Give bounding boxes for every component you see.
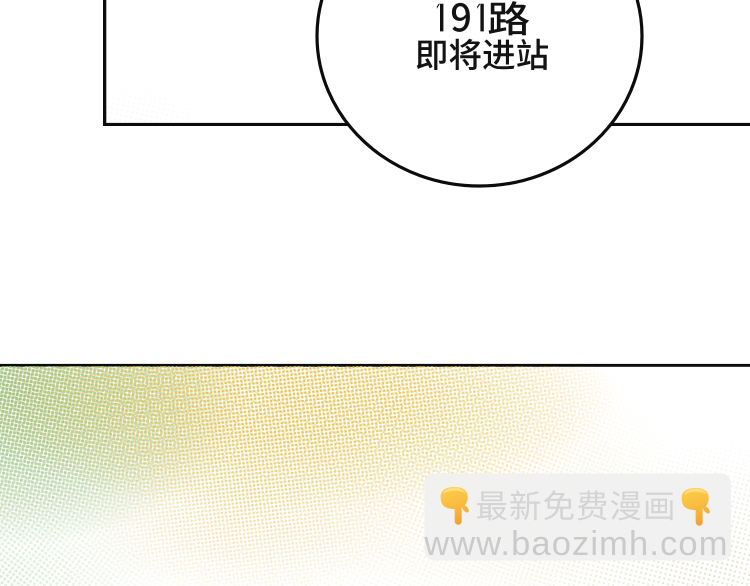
svg-text:www.baozimh.com: www.baozimh.com xyxy=(423,525,728,563)
